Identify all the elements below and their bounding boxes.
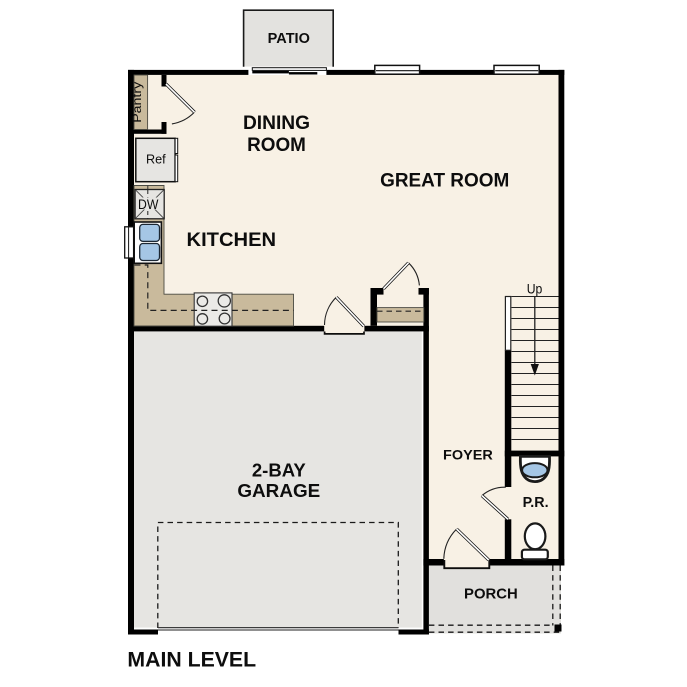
svg-text:FOYER: FOYER (443, 447, 493, 463)
svg-text:DW: DW (138, 197, 159, 212)
svg-text:Ref: Ref (146, 151, 166, 166)
svg-text:KITCHEN: KITCHEN (187, 229, 277, 251)
svg-text:GREAT ROOM: GREAT ROOM (380, 170, 509, 191)
svg-text:P.R.: P.R. (523, 495, 549, 511)
svg-text:PORCH: PORCH (464, 586, 518, 602)
svg-text:ROOM: ROOM (247, 134, 306, 156)
svg-text:Pantry: Pantry (130, 81, 144, 123)
svg-text:PATIO: PATIO (268, 31, 310, 47)
svg-text:GARAGE: GARAGE (237, 480, 320, 501)
svg-text:Up: Up (527, 281, 543, 297)
svg-text:DINING: DINING (243, 112, 310, 134)
svg-text:2-BAY: 2-BAY (252, 459, 306, 480)
svg-text:MAIN LEVEL: MAIN LEVEL (127, 648, 256, 671)
